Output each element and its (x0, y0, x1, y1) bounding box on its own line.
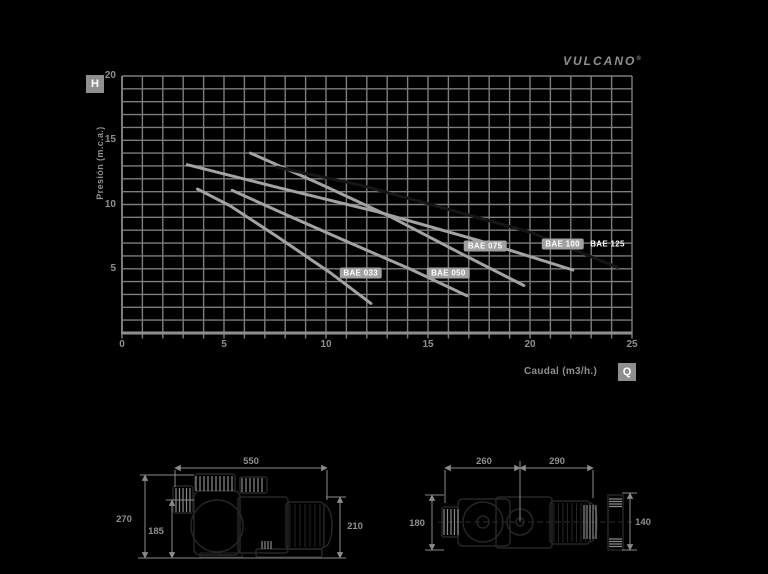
curve-label: BAE 125 (590, 240, 625, 249)
dim-length-top: 550 (243, 456, 259, 467)
x-tick-label: 5 (221, 339, 227, 350)
pump-side-view-drawing: 550 270 185 210 (110, 445, 370, 570)
dim-width-front: 260 (476, 456, 492, 467)
flow-axis-badge: Q (618, 363, 636, 381)
dim-flange: 140 (635, 517, 651, 528)
x-tick-label: 0 (119, 339, 125, 350)
curve-label: BAE 075 (464, 240, 507, 251)
curve-label: BAE 050 (427, 267, 470, 278)
x-tick-label: 10 (320, 339, 331, 350)
dim-width-rear: 290 (549, 456, 565, 467)
dim-height-inlet: 185 (148, 526, 165, 537)
pump-top-view-drawing: 260 290 180 140 (400, 445, 660, 570)
y-axis-label: Presión (m.c.a.) (95, 93, 105, 233)
pump-datasheet-page: VULCANO® 05101520255101520BAE 033BAE 050… (0, 0, 768, 574)
x-tick-label: 20 (524, 339, 535, 350)
x-axis-label: Caudal (m3/h.) (524, 366, 597, 377)
top-view-pump-outline (438, 495, 632, 550)
pump-curve-chart-canvas (0, 0, 768, 420)
dim-depth: 180 (409, 518, 425, 529)
curve-label: BAE 100 (541, 239, 584, 250)
dim-height-overall: 270 (116, 514, 132, 525)
top-view-dimensions: 260 290 180 140 (409, 456, 651, 550)
curve-label: BAE 033 (339, 267, 382, 278)
x-tick-label: 15 (422, 339, 433, 350)
head-axis-badge: H (86, 75, 104, 93)
side-view-pump-outline (173, 474, 332, 557)
x-tick-label: 25 (626, 339, 637, 350)
dim-height-right: 210 (347, 521, 363, 532)
y-tick-label: 5 (86, 263, 116, 274)
